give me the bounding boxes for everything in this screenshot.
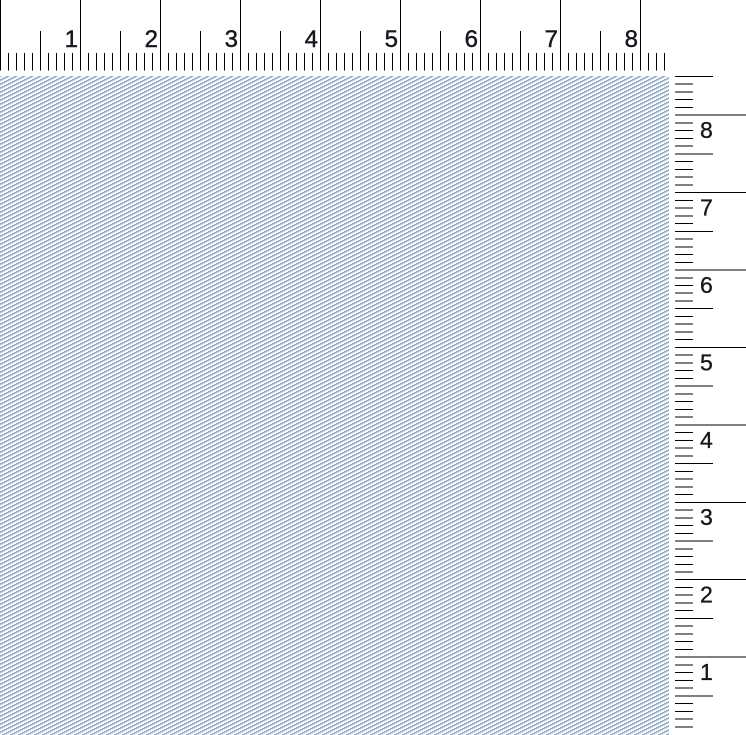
svg-text:3: 3 [700, 504, 713, 530]
svg-text:4: 4 [305, 26, 318, 53]
svg-text:3: 3 [225, 26, 238, 53]
svg-text:7: 7 [545, 26, 558, 53]
svg-text:6: 6 [700, 272, 713, 298]
svg-text:7: 7 [700, 195, 713, 221]
svg-text:2: 2 [700, 582, 713, 608]
svg-text:8: 8 [625, 26, 638, 53]
svg-text:4: 4 [700, 427, 713, 453]
svg-text:1: 1 [65, 26, 78, 53]
svg-text:2: 2 [145, 26, 158, 53]
svg-text:6: 6 [465, 26, 478, 53]
svg-text:5: 5 [700, 349, 713, 375]
svg-text:1: 1 [700, 659, 713, 685]
svg-text:8: 8 [700, 117, 713, 143]
svg-text:5: 5 [385, 26, 398, 53]
